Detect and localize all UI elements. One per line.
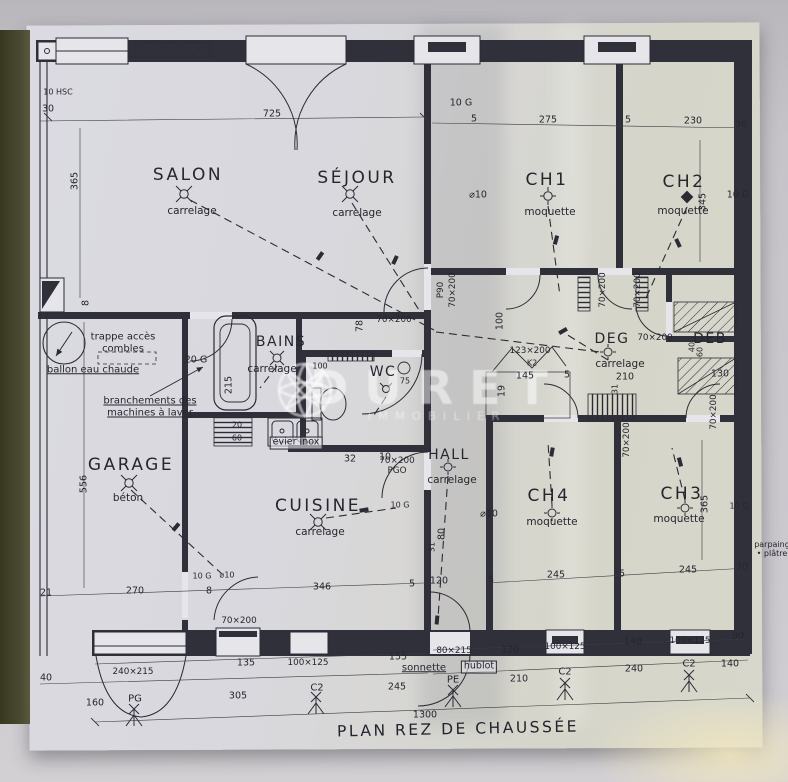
plan-annotation: 75 xyxy=(400,376,410,385)
plan-annotation: hublot xyxy=(461,661,497,674)
plan-annotation: 5 xyxy=(564,371,570,382)
section-marker-c2: C2 xyxy=(682,658,695,670)
plan-annotation: 10 G xyxy=(193,571,212,580)
plan-annotation: 80×215 xyxy=(436,646,471,656)
plan-annotation: 10 G xyxy=(730,501,749,510)
plan-annotation: 123×200 xyxy=(510,346,551,356)
room-deg: DEG xyxy=(595,331,630,347)
plan-annotation: 20 xyxy=(232,420,242,429)
plan-annotation: 345 xyxy=(699,193,710,211)
plan-annotation: 120 xyxy=(501,646,519,657)
plan-annotation: 240×215 xyxy=(113,667,154,677)
plan-annotation: P90 xyxy=(436,282,446,299)
plan-annotation: 32 xyxy=(344,455,356,466)
plan-annotation: 70×200 xyxy=(633,272,643,307)
section-marker-c2: C2 xyxy=(310,682,323,694)
plan-annotation: 30 xyxy=(735,121,747,132)
plan-annotation: 80 xyxy=(438,528,449,540)
plan-annotation: 100×125 xyxy=(288,658,329,668)
plan-annotation: 210 xyxy=(510,675,528,686)
plan-annotation: 140 xyxy=(624,638,642,649)
plan-annotation: 70×200 xyxy=(709,394,719,429)
plan-annotation: ⌀10 xyxy=(469,191,487,202)
plan-annotation: 130 xyxy=(711,370,729,381)
plan-annotation: 19 xyxy=(498,385,509,397)
room-ch2: CH2 xyxy=(663,173,706,193)
plan-annotation: 70×200 xyxy=(598,272,608,307)
plan-annotation: 5 xyxy=(625,116,631,127)
plan-annotation: 245 xyxy=(547,571,565,582)
plan-annotation: 5 xyxy=(409,580,415,591)
plan-annotation: branchements des machines à laver xyxy=(103,396,196,419)
plan-annotation: 31 xyxy=(610,384,619,394)
plan-annotation: 556 xyxy=(80,475,91,493)
plan-annotation: ballon eau chaude xyxy=(47,364,139,376)
plan-annotation: 60 xyxy=(232,433,242,442)
plan-annotation: 365 xyxy=(701,495,712,513)
room-bains: BAINS xyxy=(256,334,306,350)
plan-annotation: 70×200 xyxy=(376,315,411,325)
plan-annotation: carrelage xyxy=(167,205,216,217)
section-marker-c2: C2 xyxy=(558,666,571,678)
plan-annotation: 230 xyxy=(684,117,702,128)
plan-annotation: carrelage xyxy=(595,358,644,370)
plan-annotation: carrelage xyxy=(427,474,476,486)
plan-annotation: 210 xyxy=(616,373,634,384)
plan-annotation: 120 xyxy=(430,577,448,588)
plan-annotation: K2 xyxy=(527,358,537,367)
room-ch4: CH4 xyxy=(528,487,571,507)
room-salon: SALON xyxy=(153,166,223,186)
plan-annotation: parpaing • plâtre xyxy=(754,540,788,558)
plan-annotation: 90 xyxy=(732,632,744,643)
plan-annotation: 30 xyxy=(736,563,748,574)
plan-annotation: 346 xyxy=(313,583,331,594)
plan-annotation: 70×200 xyxy=(221,616,256,626)
plan-annotation: 70×200 xyxy=(448,272,458,307)
plan-annotation: 70×200 xyxy=(622,422,632,457)
plan-annotation: 8 xyxy=(82,300,93,306)
plan-annotation: 270 xyxy=(126,587,144,598)
plan-annotation: béton xyxy=(113,492,143,504)
plan-annotation: évier inox xyxy=(270,437,323,450)
plan-annotation: 5 xyxy=(488,576,494,587)
plan-annotation: 160 xyxy=(86,699,104,710)
plan-annotation: carrelage xyxy=(295,526,344,538)
plan-annotation: 100×125 xyxy=(670,636,711,646)
room-wc: WC xyxy=(370,364,397,380)
plan-annotation: 60 xyxy=(695,347,704,357)
plan-annotation: 30 xyxy=(42,105,54,116)
plan-annotation: 215 xyxy=(225,376,236,394)
plan-annotation: 78 xyxy=(356,320,367,332)
plan-annotation: carrelage xyxy=(332,207,381,219)
plan-annotation: 8 xyxy=(206,587,212,598)
plan-annotation: 70×200 xyxy=(637,333,672,343)
plan-annotation: 10 G xyxy=(391,500,410,509)
plan-annotation: 275 xyxy=(539,116,557,127)
plan-annotation: 20 G xyxy=(185,356,207,367)
plan-annotation: 10 G xyxy=(450,99,472,110)
plan-annotation: 10 G xyxy=(727,191,749,202)
plan-annotation: 365 xyxy=(71,172,82,190)
plan-annotation: 5 xyxy=(471,115,477,126)
room-garage: GARAGE xyxy=(88,456,174,476)
plan-annotation: ⌀10 xyxy=(220,570,235,579)
plan-annotation: 240 xyxy=(625,665,643,676)
plan-annotation: moquette xyxy=(526,516,577,528)
section-marker-pe: PE xyxy=(447,674,459,686)
plan-annotation: 100 xyxy=(312,361,327,370)
room-sejour: SÉJOUR xyxy=(317,169,396,189)
plan-annotation: sonnette xyxy=(402,662,446,674)
room-ch3: CH3 xyxy=(661,485,704,505)
floorplan-labels: SALONSÉJOURCH1CH2BAINSWCDEGDEBGARAGECUIS… xyxy=(0,0,788,782)
plan-annotation: 245 xyxy=(679,566,697,577)
plan-annotation: 31 xyxy=(427,542,436,552)
section-marker-pg: PG xyxy=(128,693,142,705)
plan-annotation: 40 xyxy=(40,674,52,685)
plan-annotation: moquette xyxy=(524,206,575,218)
plan-annotation: 140 xyxy=(721,660,739,671)
plan-annotation: 100×125 xyxy=(545,642,586,652)
plan-annotation: 245 xyxy=(388,683,406,694)
plan-annotation: 135 xyxy=(237,659,255,670)
plan-annotation: 10 xyxy=(379,453,391,464)
plan-annotation: 21 xyxy=(40,589,52,600)
plan-annotation: 5 xyxy=(619,570,625,581)
plan-annotation: 305 xyxy=(229,692,247,703)
plan-annotation: trappe accès combles xyxy=(91,332,156,355)
room-ch1: CH1 xyxy=(526,171,569,191)
plan-annotation: ⌀10 xyxy=(480,510,498,521)
room-cuisine: CUISINE xyxy=(275,497,361,517)
plan-annotation: carrelage xyxy=(247,363,296,375)
photo-of-floorplan: DURET IMMOBILIER SALONSÉJOURCH1CH2BAINSW… xyxy=(0,0,788,782)
plan-annotation: 155 xyxy=(389,653,407,664)
plan-annotation: 100 xyxy=(496,312,507,330)
plan-annotation: moquette xyxy=(653,513,704,525)
room-deb: DEB xyxy=(693,331,727,347)
plan-annotation: 145 xyxy=(516,372,534,383)
plan-annotation: 725 xyxy=(263,110,281,121)
plan-annotation: 10 HSC xyxy=(43,87,72,96)
room-hall: HALL xyxy=(428,447,470,463)
